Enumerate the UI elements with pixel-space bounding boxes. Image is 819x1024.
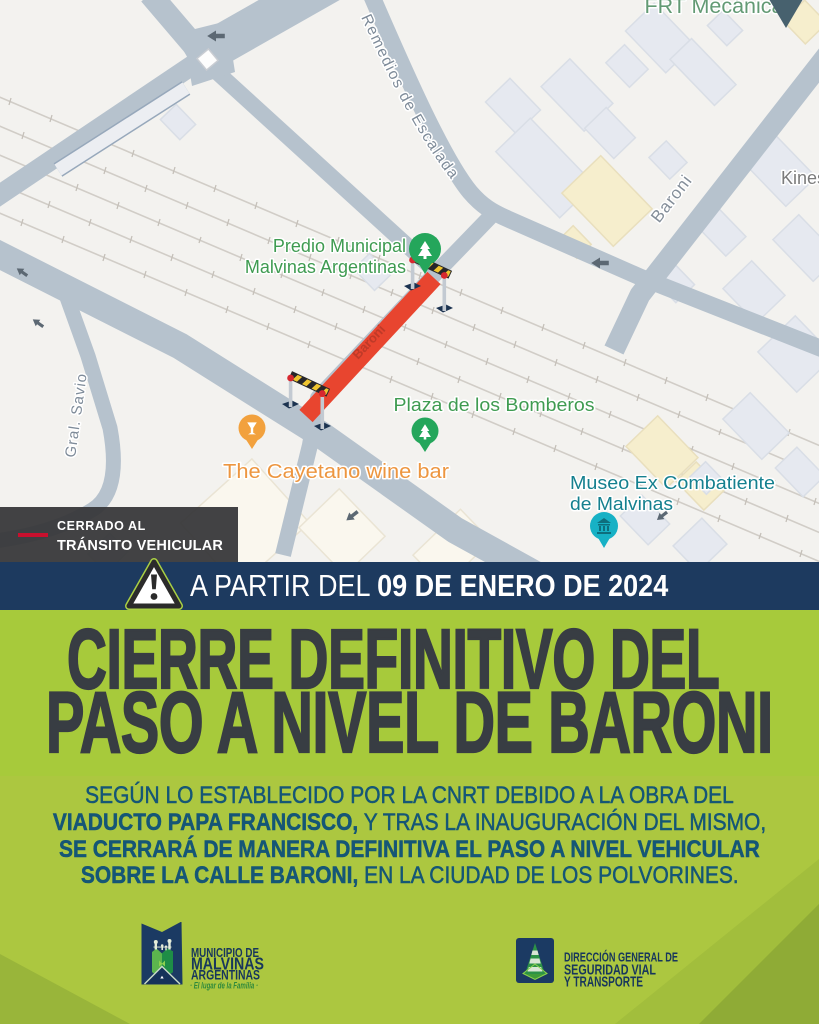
svg-text:Kines: Kines [781,168,819,188]
svg-text:· El lugar de la Familia ·: · El lugar de la Familia · [190,981,258,992]
svg-text:Y TRANSPORTE: Y TRANSPORTE [564,974,643,991]
svg-text:Museo Ex Combatiente: Museo Ex Combatiente [570,472,775,493]
svg-text:The Cayetano wine bar: The Cayetano wine bar [223,461,449,483]
svg-text:FRT Mecánica: FRT Mecánica [644,0,783,18]
svg-text:Malvinas Argentinas: Malvinas Argentinas [245,257,406,277]
svg-text:Plaza de los Bomberos: Plaza de los Bomberos [394,394,595,415]
svg-text:Predio Municipal: Predio Municipal [273,236,406,256]
svg-text:de Malvinas: de Malvinas [570,493,673,514]
